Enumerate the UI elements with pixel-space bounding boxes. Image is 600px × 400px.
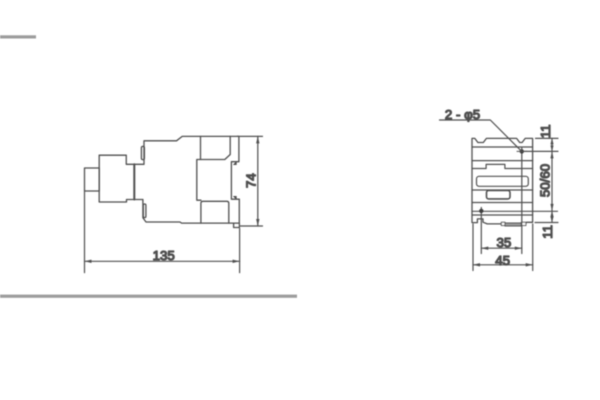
svg-text:2 - φ5: 2 - φ5 <box>445 107 480 122</box>
svg-text:74: 74 <box>243 173 258 188</box>
svg-text:50/60: 50/60 <box>538 164 553 197</box>
svg-text:11: 11 <box>538 124 553 138</box>
svg-text:135: 135 <box>153 248 175 263</box>
svg-text:35: 35 <box>497 235 512 250</box>
svg-text:45: 45 <box>495 253 510 268</box>
svg-text:11: 11 <box>540 225 555 239</box>
